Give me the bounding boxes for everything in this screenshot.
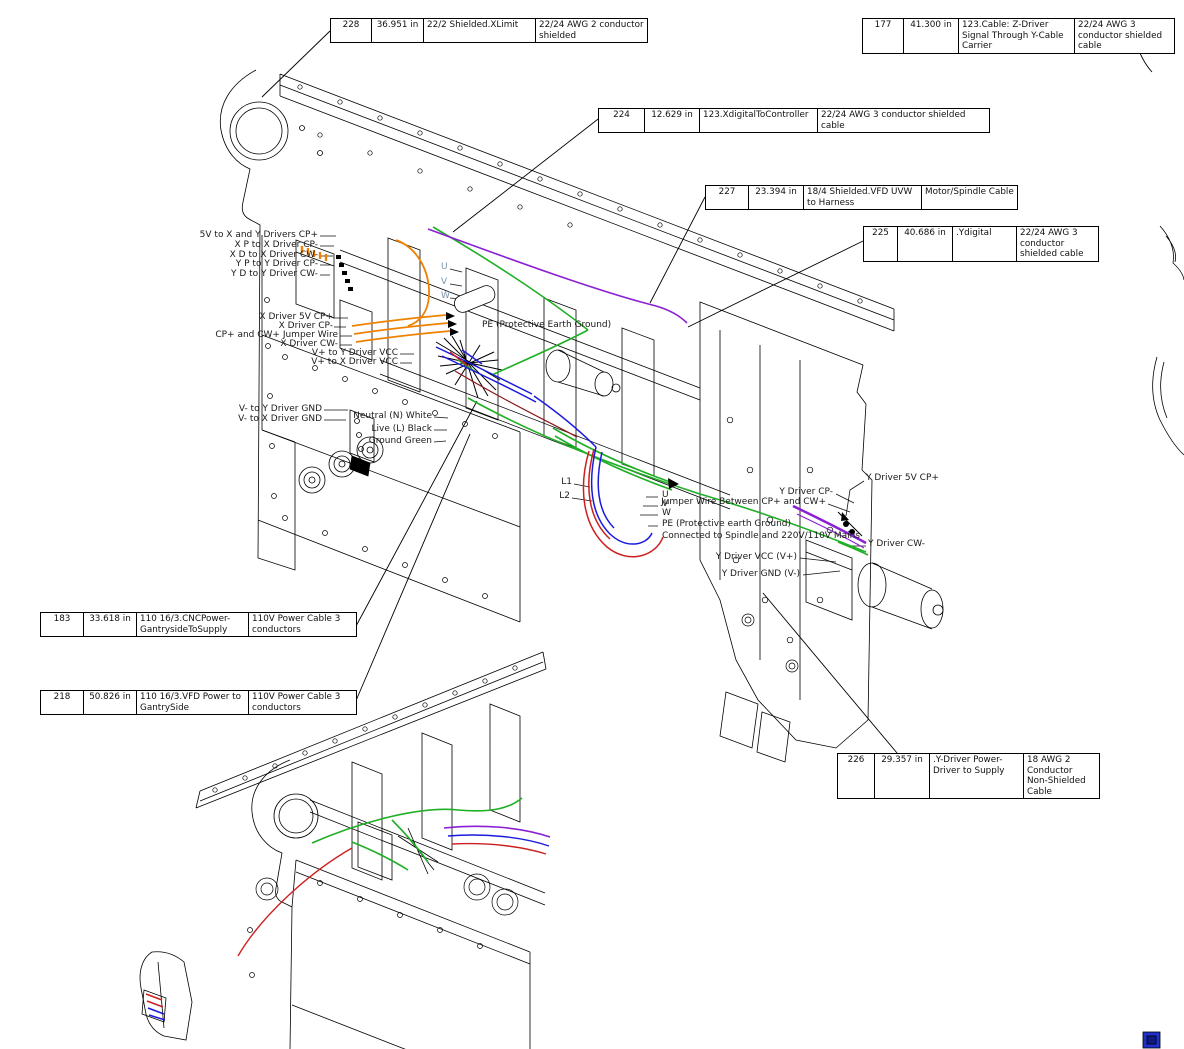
- callout-length-cell: 29.357 in: [874, 754, 929, 798]
- wire-label: Connected to Spindle and 220V/110V Mains: [662, 532, 860, 541]
- callout-177: 177 41.300 in 123.Cable: Z-Driver Signal…: [862, 18, 1175, 54]
- wire-label: V- to X Driver GND: [238, 415, 322, 424]
- wire-label: Y Driver 5V CP+: [866, 474, 939, 483]
- callout-218: 218 50.826 in 110 16/3.VFD Power to Gant…: [40, 690, 357, 715]
- callout-spec-cell: 22/24 AWG 2 conductor shielded: [535, 19, 647, 42]
- wire-label: W: [662, 509, 671, 518]
- callout-227: 227 23.394 in 18/4 Shielded.VFD UVW to H…: [705, 185, 1018, 210]
- callout-id-cell: 218: [41, 691, 83, 714]
- wire-label: Y D to Y Driver CW-: [231, 270, 318, 279]
- callout-spec-cell: 22/24 AWG 3 conductor shielded cable: [817, 109, 989, 132]
- callout-225: 225 40.686 in .Ydigital 22/24 AWG 3 cond…: [863, 226, 1099, 262]
- gantry-top-view: [220, 70, 943, 762]
- callout-cable-cell: 18/4 Shielded.VFD UVW to Harness: [803, 186, 921, 209]
- callout-spec-cell: 22/24 AWG 3 conductor shielded cable: [1016, 227, 1098, 261]
- wire-label: V+ to X Driver VCC: [311, 358, 398, 367]
- callout-cable-cell: 123.XdigitalToController: [699, 109, 817, 132]
- callout-228: 228 36.951 in 22/2 Shielded.XLimit 22/24…: [330, 18, 648, 43]
- wire-label: Neutral (N) White: [353, 412, 432, 421]
- wire-label: Y Driver VCC (V+): [716, 553, 797, 562]
- callout-spec-cell: Motor/Spindle Cable: [921, 186, 1017, 209]
- callout-cable-cell: .Ydigital: [952, 227, 1016, 261]
- callout-cable-cell: .Y-Driver Power-Driver to Supply: [929, 754, 1023, 798]
- wire-label: Y Driver CW-: [868, 540, 925, 549]
- wire-label: L2: [559, 492, 570, 501]
- callout-cable-cell: 110 16/3.VFD Power to GantrySide: [136, 691, 248, 714]
- wires-bottom: [146, 798, 550, 1020]
- callout-id-cell: 225: [864, 227, 897, 261]
- callout-leader-lines: [262, 31, 1152, 753]
- wire-label: V: [441, 278, 447, 287]
- callout-spec-cell: 110V Power Cable 3 conductors: [248, 691, 356, 714]
- wire-label: W: [441, 292, 450, 301]
- callout-id-cell: 228: [331, 19, 371, 42]
- wire-label: Y Driver GND (V-): [722, 570, 800, 579]
- callout-length-cell: 12.629 in: [644, 109, 699, 132]
- wire-label: PE (Protective Earth Ground): [482, 321, 611, 330]
- wire-label: L1: [561, 478, 572, 487]
- callout-id-cell: 224: [599, 109, 644, 132]
- callout-cable-cell: 110 16/3.CNCPower-GantrysideToSupply: [136, 613, 248, 636]
- callout-spec-cell: 22/24 AWG 3 conductor shielded cable: [1074, 19, 1174, 53]
- wire-label: Live (L) Black: [372, 425, 433, 434]
- red-wires: [450, 352, 663, 557]
- callout-spec-cell: 18 AWG 2 Conductor Non-Shielded Cable: [1023, 754, 1099, 798]
- driver-pins: [336, 255, 855, 535]
- callout-length-cell: 50.826 in: [83, 691, 136, 714]
- wire-label: U: [441, 263, 448, 272]
- callout-id-cell: 227: [706, 186, 748, 209]
- dark-red-wire: [455, 371, 577, 437]
- callout-length-cell: 23.394 in: [748, 186, 803, 209]
- callout-id-cell: 177: [863, 19, 903, 53]
- callout-183: 183 33.618 in 110 16/3.CNCPower-Gantrysi…: [40, 612, 357, 637]
- edge-fragments: [1143, 226, 1184, 1048]
- wire-label: Jumper Wire Between CP+ and CW+: [661, 498, 826, 507]
- wire-label: Ground Green: [369, 437, 432, 446]
- wire-label: PE (Protective earth Ground): [662, 520, 791, 529]
- callout-id-cell: 226: [838, 754, 874, 798]
- callout-226: 226 29.357 in .Y-Driver Power-Driver to …: [837, 753, 1100, 799]
- machine-line-art: [0, 0, 1184, 1049]
- callout-length-cell: 36.951 in: [371, 19, 423, 42]
- callout-id-cell: 183: [41, 613, 83, 636]
- callout-spec-cell: 110V Power Cable 3 conductors: [248, 613, 356, 636]
- callout-cable-cell: 123.Cable: Z-Driver Signal Through Y-Cab…: [958, 19, 1074, 53]
- callout-cable-cell: 22/2 Shielded.XLimit: [423, 19, 535, 42]
- callout-length-cell: 40.686 in: [897, 227, 952, 261]
- callout-length-cell: 41.300 in: [903, 19, 958, 53]
- callout-224: 224 12.629 in 123.XdigitalToController 2…: [598, 108, 990, 133]
- cad-drawing-canvas: 228 36.951 in 22/2 Shielded.XLimit 22/24…: [0, 0, 1184, 1049]
- callout-length-cell: 33.618 in: [83, 613, 136, 636]
